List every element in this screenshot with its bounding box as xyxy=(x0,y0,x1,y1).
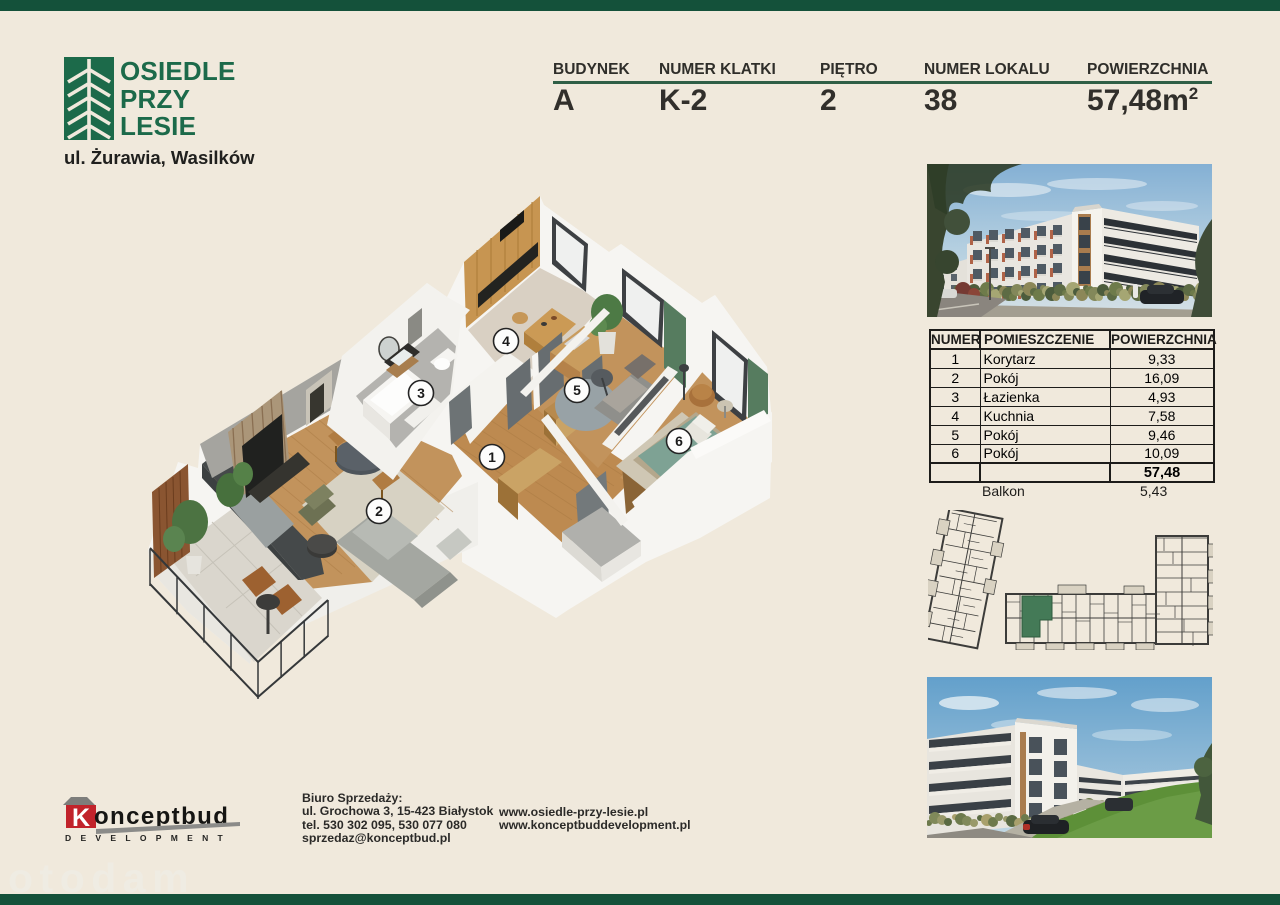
svg-text:4: 4 xyxy=(502,333,510,349)
svg-text:1: 1 xyxy=(488,449,496,465)
svg-text:6: 6 xyxy=(675,433,683,449)
svg-text:5: 5 xyxy=(573,382,581,398)
svg-text:3: 3 xyxy=(417,385,425,401)
svg-text:K: K xyxy=(72,804,90,832)
svg-text:2: 2 xyxy=(375,503,383,519)
svg-text:DEVELOPMENT: DEVELOPMENT xyxy=(65,833,232,843)
